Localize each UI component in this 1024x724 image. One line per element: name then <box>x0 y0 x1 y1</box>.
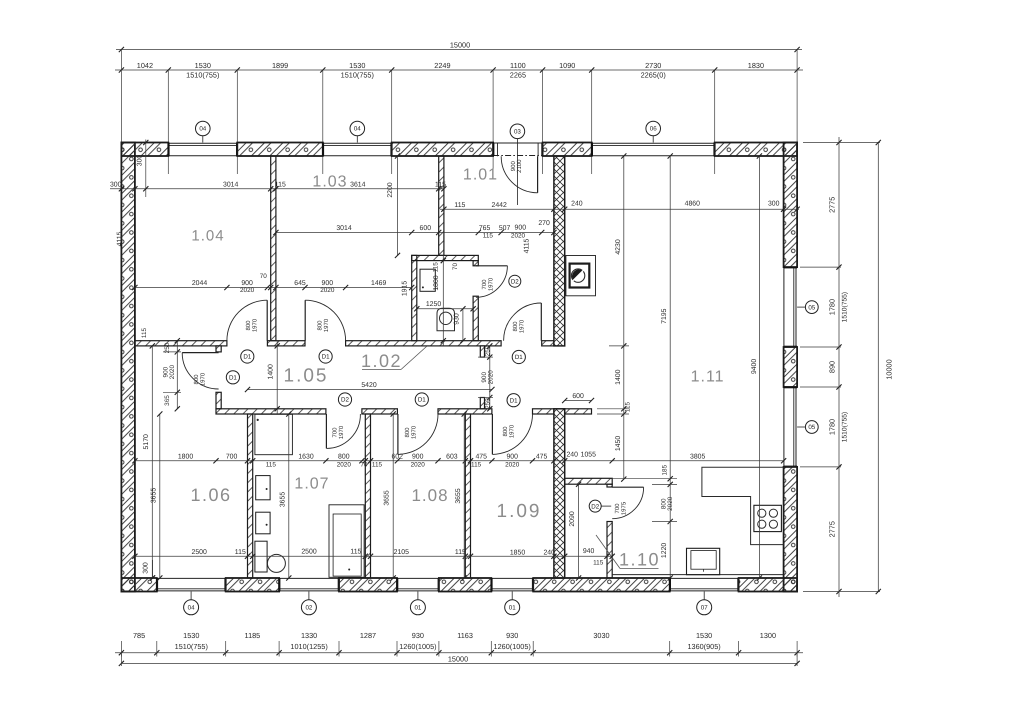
svg-text:600: 600 <box>572 393 584 400</box>
svg-text:D2: D2 <box>341 397 349 404</box>
svg-text:3014: 3014 <box>223 181 238 188</box>
svg-text:1970: 1970 <box>487 277 494 291</box>
svg-text:940: 940 <box>583 548 595 555</box>
svg-text:1400: 1400 <box>615 369 622 384</box>
svg-text:1.10: 1.10 <box>619 550 660 570</box>
svg-text:70: 70 <box>452 263 459 271</box>
svg-text:900: 900 <box>241 280 253 287</box>
svg-text:2020: 2020 <box>320 287 335 294</box>
svg-text:1530: 1530 <box>195 61 211 70</box>
svg-text:D1: D1 <box>322 354 330 361</box>
svg-text:115: 115 <box>454 202 465 209</box>
svg-text:1300: 1300 <box>760 631 776 640</box>
svg-text:D1: D1 <box>418 397 426 404</box>
svg-text:2265: 2265 <box>510 71 526 80</box>
svg-text:115: 115 <box>625 401 632 412</box>
svg-text:1287: 1287 <box>360 631 376 640</box>
svg-text:5420: 5420 <box>361 382 376 389</box>
svg-text:700: 700 <box>614 503 621 514</box>
svg-text:800: 800 <box>512 321 519 332</box>
svg-text:300: 300 <box>768 201 780 208</box>
svg-text:1330: 1330 <box>301 631 317 640</box>
svg-text:1.07: 1.07 <box>294 476 329 493</box>
svg-text:115: 115 <box>141 327 148 338</box>
svg-text:1970: 1970 <box>251 318 258 332</box>
svg-text:15000: 15000 <box>448 654 468 663</box>
svg-text:1970: 1970 <box>323 318 330 332</box>
svg-text:1.04: 1.04 <box>191 228 224 245</box>
svg-text:240: 240 <box>566 451 578 458</box>
svg-text:70: 70 <box>260 273 268 280</box>
svg-text:930: 930 <box>412 631 424 640</box>
svg-text:3655: 3655 <box>384 490 391 505</box>
svg-text:1042: 1042 <box>137 61 153 70</box>
svg-text:1800: 1800 <box>178 453 193 460</box>
svg-text:1360(905): 1360(905) <box>687 642 720 651</box>
svg-text:07: 07 <box>701 605 708 612</box>
svg-text:365: 365 <box>164 395 171 406</box>
svg-text:D2: D2 <box>511 278 519 285</box>
svg-text:1830: 1830 <box>748 61 764 70</box>
svg-text:2500: 2500 <box>301 548 316 555</box>
svg-text:800: 800 <box>338 453 350 460</box>
svg-text:600: 600 <box>420 225 432 232</box>
svg-text:300: 300 <box>142 562 149 574</box>
svg-text:785: 785 <box>133 631 145 640</box>
svg-text:1.01: 1.01 <box>463 167 498 184</box>
svg-text:02: 02 <box>305 605 312 612</box>
svg-text:115: 115 <box>471 461 482 468</box>
svg-text:1.03: 1.03 <box>312 174 347 191</box>
svg-text:645: 645 <box>294 280 306 287</box>
svg-text:800: 800 <box>193 374 200 385</box>
svg-text:300: 300 <box>110 181 122 188</box>
svg-text:900: 900 <box>412 453 424 460</box>
svg-text:900: 900 <box>515 225 527 232</box>
svg-text:3655: 3655 <box>455 488 462 503</box>
svg-text:1970: 1970 <box>338 425 345 439</box>
svg-text:2090: 2090 <box>569 511 576 526</box>
svg-text:507: 507 <box>499 225 511 232</box>
svg-text:930: 930 <box>453 313 460 325</box>
svg-text:890: 890 <box>828 361 837 373</box>
svg-text:185: 185 <box>662 464 669 475</box>
svg-text:1630: 1630 <box>298 453 313 460</box>
svg-text:1510(755): 1510(755) <box>341 71 374 80</box>
svg-text:115: 115 <box>266 461 277 468</box>
svg-text:4115: 4115 <box>523 238 530 253</box>
svg-text:1185: 1185 <box>245 631 261 640</box>
svg-text:05: 05 <box>808 304 815 311</box>
svg-text:3030: 3030 <box>593 631 609 640</box>
svg-text:800: 800 <box>245 320 252 331</box>
svg-text:1250: 1250 <box>426 301 441 308</box>
svg-text:15000: 15000 <box>450 41 470 50</box>
svg-text:3014: 3014 <box>336 225 351 232</box>
svg-text:2775: 2775 <box>828 197 837 213</box>
svg-text:9400: 9400 <box>751 359 758 374</box>
svg-text:115: 115 <box>372 461 383 468</box>
svg-text:240: 240 <box>543 549 555 556</box>
svg-text:3655: 3655 <box>150 488 157 503</box>
svg-text:1.08: 1.08 <box>411 486 448 505</box>
svg-text:1970: 1970 <box>410 425 417 439</box>
svg-text:800: 800 <box>502 426 509 437</box>
svg-text:1975: 1975 <box>620 501 627 515</box>
svg-text:2105: 2105 <box>394 549 409 556</box>
svg-text:115: 115 <box>350 548 361 555</box>
svg-text:700: 700 <box>331 427 338 438</box>
svg-text:7195: 7195 <box>661 308 668 323</box>
svg-text:900: 900 <box>322 280 334 287</box>
svg-text:1970: 1970 <box>199 372 206 386</box>
svg-text:04: 04 <box>188 605 195 612</box>
svg-text:D2: D2 <box>591 503 599 510</box>
svg-text:270: 270 <box>538 220 550 227</box>
svg-text:1970: 1970 <box>519 319 526 333</box>
svg-text:5170: 5170 <box>143 434 150 449</box>
svg-text:1100: 1100 <box>510 61 526 70</box>
svg-text:1220: 1220 <box>661 543 668 558</box>
svg-text:1400: 1400 <box>268 364 275 379</box>
svg-text:1530: 1530 <box>696 631 712 640</box>
svg-text:930: 930 <box>506 631 518 640</box>
svg-text:3805: 3805 <box>690 453 705 460</box>
svg-text:4230: 4230 <box>615 239 622 254</box>
svg-text:2020: 2020 <box>511 232 526 239</box>
svg-text:1915: 1915 <box>402 281 409 296</box>
svg-text:01: 01 <box>509 605 516 612</box>
svg-text:115: 115 <box>593 560 604 567</box>
svg-text:115: 115 <box>435 181 446 188</box>
svg-text:475: 475 <box>475 453 487 460</box>
svg-text:1.05: 1.05 <box>284 366 329 387</box>
svg-text:2020: 2020 <box>488 370 495 385</box>
svg-text:2775: 2775 <box>828 521 837 537</box>
svg-text:1850: 1850 <box>510 549 525 556</box>
svg-text:01: 01 <box>414 605 421 612</box>
svg-text:2020: 2020 <box>169 365 176 380</box>
svg-text:1800: 1800 <box>433 275 440 290</box>
svg-text:2020: 2020 <box>337 461 352 468</box>
svg-text:1.02: 1.02 <box>361 351 402 371</box>
svg-text:06: 06 <box>650 126 657 133</box>
svg-text:1510(755): 1510(755) <box>175 642 208 651</box>
svg-text:115: 115 <box>483 232 494 239</box>
svg-text:4115: 4115 <box>117 231 124 246</box>
svg-text:1970: 1970 <box>508 424 515 438</box>
svg-text:2249: 2249 <box>434 61 450 70</box>
svg-text:2020: 2020 <box>411 461 426 468</box>
svg-text:D1: D1 <box>510 397 518 404</box>
svg-text:1780: 1780 <box>828 299 837 315</box>
svg-text:1.06: 1.06 <box>190 485 231 505</box>
svg-text:603: 603 <box>446 453 458 460</box>
svg-text:2442: 2442 <box>492 202 507 209</box>
svg-text:1899: 1899 <box>272 61 288 70</box>
svg-text:2020: 2020 <box>667 496 674 511</box>
svg-text:D1: D1 <box>229 375 237 382</box>
svg-text:115: 115 <box>432 262 439 273</box>
svg-text:300: 300 <box>137 155 144 167</box>
svg-text:2200: 2200 <box>387 182 394 197</box>
svg-text:1090: 1090 <box>559 61 575 70</box>
svg-text:1510(755): 1510(755) <box>842 292 849 323</box>
svg-text:900: 900 <box>510 161 517 172</box>
svg-text:1163: 1163 <box>457 631 473 640</box>
svg-text:1.09: 1.09 <box>497 501 542 522</box>
svg-text:1260(1005): 1260(1005) <box>399 642 436 651</box>
svg-text:1530: 1530 <box>349 61 365 70</box>
svg-text:03: 03 <box>514 129 521 136</box>
svg-text:1469: 1469 <box>371 280 386 287</box>
svg-text:1530: 1530 <box>183 631 199 640</box>
svg-text:800: 800 <box>317 320 324 331</box>
svg-text:10000: 10000 <box>885 359 894 379</box>
svg-text:1055: 1055 <box>581 451 596 458</box>
svg-text:2730: 2730 <box>645 61 661 70</box>
svg-text:1.11: 1.11 <box>691 369 725 386</box>
svg-text:250: 250 <box>484 398 491 409</box>
svg-text:D1: D1 <box>515 354 523 361</box>
svg-text:2265(0): 2265(0) <box>641 71 666 80</box>
svg-text:D1: D1 <box>243 354 251 361</box>
svg-text:250: 250 <box>484 345 491 356</box>
svg-text:70: 70 <box>360 461 368 468</box>
svg-text:900: 900 <box>506 453 518 460</box>
svg-text:1780: 1780 <box>828 419 837 435</box>
svg-text:04: 04 <box>354 126 361 133</box>
svg-text:2020: 2020 <box>240 287 255 294</box>
svg-text:05: 05 <box>808 424 815 431</box>
svg-text:700: 700 <box>481 279 488 290</box>
svg-text:700: 700 <box>226 453 238 460</box>
svg-text:1450: 1450 <box>615 436 622 451</box>
svg-text:475: 475 <box>536 453 548 460</box>
svg-text:240: 240 <box>571 201 583 208</box>
svg-text:3655: 3655 <box>279 492 286 507</box>
svg-text:3614: 3614 <box>350 181 365 188</box>
svg-text:4860: 4860 <box>685 201 700 208</box>
svg-text:1010(1255): 1010(1255) <box>290 642 327 651</box>
svg-text:1510(755): 1510(755) <box>186 71 219 80</box>
svg-text:800: 800 <box>404 427 411 438</box>
svg-text:2020: 2020 <box>505 461 520 468</box>
svg-text:2044: 2044 <box>192 280 207 287</box>
svg-text:2500: 2500 <box>192 549 207 556</box>
svg-text:04: 04 <box>199 126 206 133</box>
svg-text:115: 115 <box>275 181 286 188</box>
svg-text:1510(755): 1510(755) <box>842 412 849 443</box>
svg-text:765: 765 <box>479 225 491 232</box>
svg-text:115: 115 <box>235 549 246 556</box>
svg-text:1260(1005): 1260(1005) <box>494 642 531 651</box>
